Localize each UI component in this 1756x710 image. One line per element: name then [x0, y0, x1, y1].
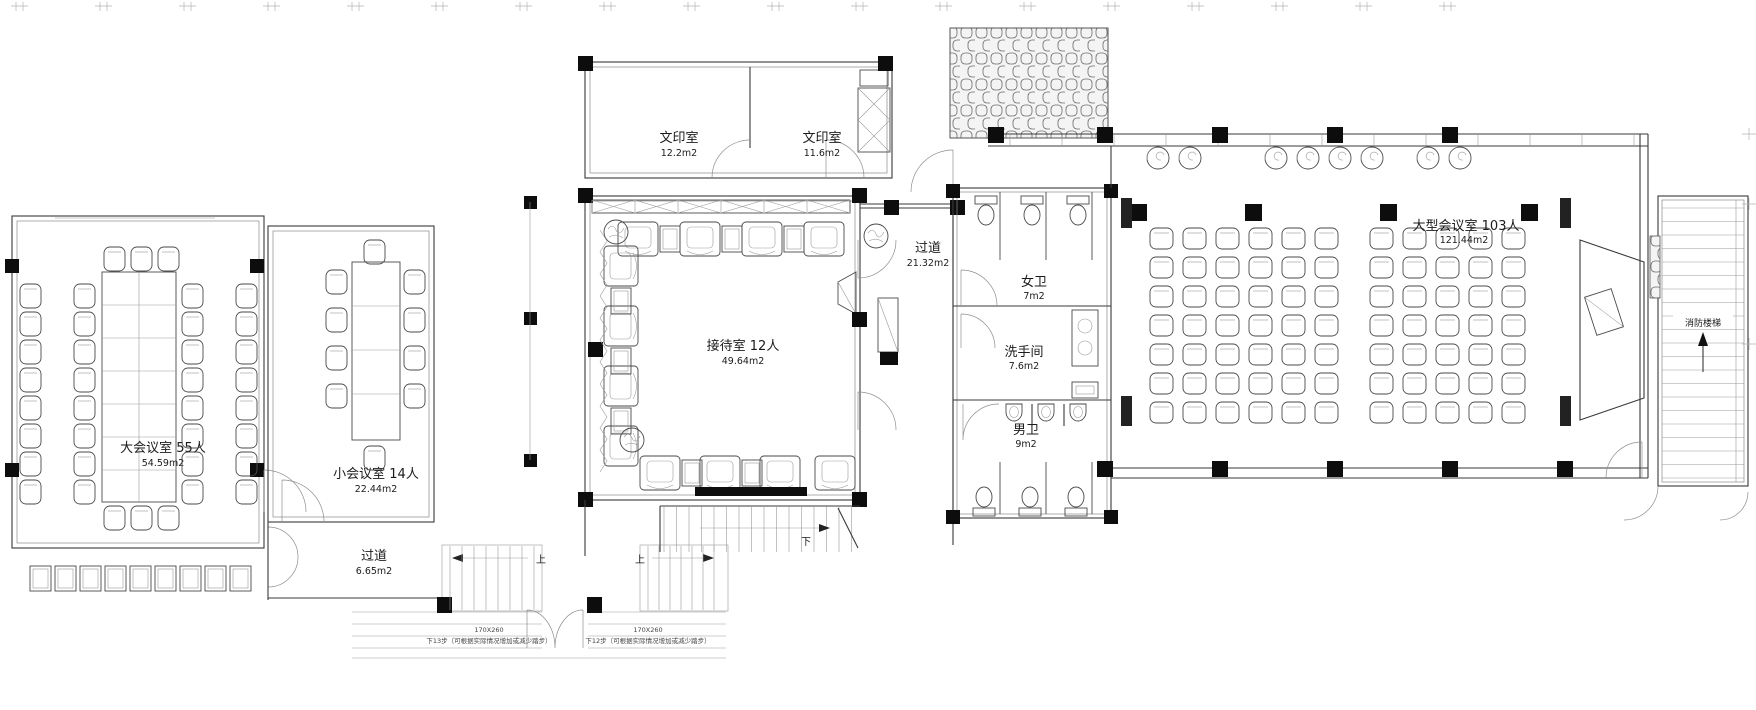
chair-icon [1469, 286, 1492, 307]
chair-icon [404, 384, 425, 408]
chair-icon [1403, 402, 1426, 423]
lounge-chair-icon [1361, 147, 1383, 169]
hatched-canopy [950, 28, 1108, 138]
armchair-icon [640, 456, 680, 490]
column-icon [5, 463, 19, 477]
door-arc [282, 480, 324, 522]
column-icon [5, 259, 19, 273]
waiting-chairs-row [30, 566, 251, 591]
arrow-head-icon [452, 554, 463, 562]
chair-icon [1282, 315, 1305, 336]
tick-mark [515, 2, 532, 11]
dimension-ticks-top [11, 2, 1456, 11]
chair-icon [20, 284, 41, 308]
vanity-counter [1072, 310, 1098, 366]
copier-cabinet [858, 88, 890, 152]
tick-mark [1103, 2, 1120, 11]
lounge-chair-icon [1329, 147, 1351, 169]
chair-icon [158, 247, 179, 271]
small-meeting-room-area: 22.44m2 [355, 484, 398, 495]
chair-icon [74, 452, 95, 476]
column-icon [946, 184, 960, 198]
column-icon [852, 492, 867, 507]
column-icon [1130, 204, 1147, 221]
square-chair-icon [80, 566, 101, 591]
lounge-chairs [1147, 147, 1471, 169]
chair-icon [1436, 344, 1459, 365]
speaker-cabinet [1560, 198, 1571, 228]
large-conference-hall: 大型会议室 103人 121.44m2 [988, 127, 1648, 478]
audience-chairs [1150, 228, 1525, 423]
cabinet-cross [858, 88, 890, 152]
tick-mark [1271, 2, 1288, 11]
chair-icon [74, 480, 95, 504]
door-arc [1720, 492, 1748, 520]
cabinet-cross [807, 200, 850, 213]
tread-dimension: 170X260 [474, 626, 503, 634]
chair-icon [20, 452, 41, 476]
print-room-1-area: 12.2m2 [661, 148, 697, 159]
lounge-chair-icon [1297, 147, 1319, 169]
door-arc [858, 392, 896, 430]
chair-icon [1370, 344, 1393, 365]
chair-icon [326, 308, 347, 332]
tick-mark [347, 2, 364, 11]
small-room-chairs [326, 240, 425, 470]
square-chair-icon [130, 566, 151, 591]
chair-icon [1469, 373, 1492, 394]
chair-icon [74, 396, 95, 420]
stair-note-12: 下12步（可根据实际情况增加或减少踏步） [585, 636, 710, 645]
side-table-icon [742, 460, 762, 486]
tick-mark [1439, 2, 1456, 11]
stall-partition [1000, 192, 1092, 260]
chair-icon [131, 247, 152, 271]
chair-icon [1150, 228, 1173, 249]
chair-icon [1403, 286, 1426, 307]
side-table-icon [722, 226, 742, 252]
corridor-left-label: 过道 [361, 549, 387, 564]
entry-stairs: 上 上 170X260 下13步（可根据实际情况增加或减少踏步） 170X260… [352, 545, 728, 658]
door-arc [712, 140, 750, 178]
chair-icon [158, 506, 179, 530]
chair-icon [1436, 286, 1459, 307]
side-table-icon [682, 460, 702, 486]
up-label: 上 [536, 554, 546, 566]
plant-icon [864, 224, 888, 248]
chair-icon [182, 284, 203, 308]
stair-note-13: 下13步（可根据实际情况增加或减少踏步） [426, 636, 551, 645]
chair-icon [20, 368, 41, 392]
column-icon [1097, 461, 1113, 477]
chair-icon [1216, 402, 1239, 423]
chair-icon [1183, 286, 1206, 307]
display-screen [838, 272, 856, 314]
tick-mark [1187, 2, 1204, 11]
small-meeting-room-label: 小会议室 14人 [333, 466, 419, 482]
shelf-inner [1076, 386, 1094, 394]
column-icon [588, 342, 603, 357]
chair-icon [1469, 315, 1492, 336]
column-icon [1521, 204, 1538, 221]
square-chair-icon [205, 566, 226, 591]
armchair-icon [604, 246, 638, 286]
floor-plan-sheet: 大会议室 55人 54.59m2 小会议室 14人 22.44m2 过道 6.6… [0, 0, 1756, 710]
cabinet-cross [635, 200, 678, 213]
side-table-icon [660, 226, 680, 252]
chair-icon [20, 480, 41, 504]
stair-rail [838, 508, 858, 548]
chair-icon [1183, 315, 1206, 336]
column-icon [1212, 461, 1228, 477]
arrow-head-icon [703, 554, 714, 562]
armchair-icon [804, 222, 844, 256]
armchair-icon [815, 456, 855, 490]
chair-icon [1469, 257, 1492, 278]
chair-icon [1282, 286, 1305, 307]
cabinet-cross [764, 200, 807, 213]
chair-icon [1282, 257, 1305, 278]
urinal-icon [1070, 404, 1086, 421]
column-icon [950, 200, 965, 215]
corridor-left: 过道 6.65m2 [268, 522, 442, 600]
cabinet-cross [592, 200, 635, 213]
chair-icon [1436, 402, 1459, 423]
door-arc [963, 404, 999, 440]
chair-icon [1216, 373, 1239, 394]
tick-mark [1355, 2, 1372, 11]
chair-icon [404, 346, 425, 370]
chair-icon [74, 368, 95, 392]
reception-room-label: 接待室 12人 [707, 338, 780, 354]
chair-icon [1216, 315, 1239, 336]
chair-icon [20, 424, 41, 448]
chair-icon [1249, 228, 1272, 249]
column-icon [878, 56, 893, 71]
chair-icon [1150, 315, 1173, 336]
chair-icon [1370, 257, 1393, 278]
chair-icon [1150, 286, 1173, 307]
print-rooms: 文印室 12.2m2 文印室 11.6m2 [585, 62, 892, 178]
armchair-icon [700, 456, 740, 490]
print-room-2-area: 11.6m2 [804, 148, 840, 159]
washroom-area: 7.6m2 [1009, 361, 1039, 372]
column-icon [946, 510, 960, 524]
tick-mark [599, 2, 616, 11]
corridor-mid-label: 过道 [915, 241, 941, 256]
armchair-icon [760, 456, 800, 490]
square-chair-icon [230, 566, 251, 591]
chair-icon [182, 340, 203, 364]
chair-icon [326, 384, 347, 408]
side-table-icon [611, 408, 631, 434]
chair-icon [1315, 373, 1338, 394]
womens-toilet-area: 7m2 [1023, 291, 1044, 302]
toilet-icon [1019, 487, 1041, 516]
chair-icon [1249, 257, 1272, 278]
chair-icon [20, 312, 41, 336]
porch-steps [352, 612, 726, 658]
washroom-label: 洗手间 [1004, 345, 1043, 360]
chair-icon [1150, 373, 1173, 394]
tick-mark [851, 2, 868, 11]
chair-icon [104, 247, 125, 271]
chair-icon [1282, 402, 1305, 423]
lounge-chair-icon [1449, 147, 1471, 169]
room-wall-inner [590, 67, 887, 173]
plant-icon [620, 428, 644, 452]
column-icon [1380, 204, 1397, 221]
column-icon [578, 56, 593, 71]
toilet-icon [1021, 196, 1043, 225]
lounge-chair-icon [1147, 147, 1169, 169]
room-wall [12, 216, 264, 548]
armchair-icon [604, 366, 638, 406]
toilet-icon [1065, 487, 1087, 516]
tick-mark [1742, 128, 1756, 140]
fire-stairs-label: 消防楼梯 [1685, 317, 1721, 329]
chair-icon [1183, 402, 1206, 423]
chair-icon [1403, 257, 1426, 278]
column-icon [578, 188, 593, 203]
chair-icon [1502, 373, 1525, 394]
chair-icon [1315, 286, 1338, 307]
chair-icon [236, 284, 257, 308]
lounge-chair-icon [1417, 147, 1439, 169]
chair-icon [1502, 286, 1525, 307]
chair-icon [182, 312, 203, 336]
chair-icon [131, 506, 152, 530]
chair-icon [236, 368, 257, 392]
tick-mark [431, 2, 448, 11]
lounge-chair-icon [1179, 147, 1201, 169]
chair-icon [1469, 402, 1492, 423]
chair-icon [326, 346, 347, 370]
tick-mark [1019, 2, 1036, 11]
chair-icon [236, 424, 257, 448]
mens-toilet-label: 男卫 [1013, 423, 1039, 438]
chair-icon [1403, 373, 1426, 394]
chair-icon [1183, 373, 1206, 394]
corridor-wall [268, 522, 442, 600]
column-icon [1097, 127, 1113, 143]
landing-beam [695, 487, 807, 496]
square-chair-icon [180, 566, 201, 591]
fire-stairs: 消防楼梯 [1624, 196, 1748, 520]
up-label: 上 [635, 554, 645, 566]
door-arc [1606, 442, 1642, 478]
chair-icon [1502, 315, 1525, 336]
column-icon [1104, 510, 1118, 524]
column-icon [1327, 461, 1343, 477]
print-room-2-label: 文印室 [802, 130, 841, 146]
reception-room-area: 49.64m2 [722, 356, 765, 367]
armchair-icon [604, 306, 638, 346]
large-meeting-room: 大会议室 55人 54.59m2 [5, 216, 306, 587]
speaker-cabinet [1121, 198, 1132, 228]
column-icon [587, 597, 602, 613]
chair-icon [1183, 344, 1206, 365]
chair-icon [182, 368, 203, 392]
chair-icon [20, 340, 41, 364]
column-icon [1557, 461, 1573, 477]
stair-flight-right [640, 545, 728, 611]
chair-icon [1315, 315, 1338, 336]
chair-icon [74, 424, 95, 448]
chair-icon [1249, 286, 1272, 307]
chair-icon [1315, 344, 1338, 365]
column-icon [880, 352, 898, 365]
square-chair-icon [55, 566, 76, 591]
chair-icon [1315, 257, 1338, 278]
wall-pier [1650, 236, 1660, 298]
chair-icon [1216, 228, 1239, 249]
chair-icon [1216, 286, 1239, 307]
chair-icon [236, 480, 257, 504]
chair-icon [364, 240, 385, 264]
chair-icon [1249, 373, 1272, 394]
armchair-icon [604, 426, 638, 466]
chair-icon [1216, 257, 1239, 278]
column-icon [1245, 204, 1262, 221]
table-panels [352, 306, 400, 394]
large-meeting-room-area: 54.59m2 [142, 458, 185, 469]
chair-icon [74, 284, 95, 308]
large-conference-area: 121.44m2 [1440, 235, 1489, 246]
meeting-table [352, 262, 400, 440]
chair-icon [1282, 373, 1305, 394]
door-arc [858, 240, 896, 278]
chair-icon [1315, 228, 1338, 249]
chair-icon [236, 340, 257, 364]
column-icon [1442, 127, 1458, 143]
hall-walls [1111, 134, 1648, 478]
chair-icon [104, 506, 125, 530]
urinal-icon [1038, 404, 1054, 421]
side-table-icon [611, 288, 631, 314]
chair-icon [1436, 315, 1459, 336]
chair-icon [1315, 402, 1338, 423]
chair-icon [236, 312, 257, 336]
floor-plan-canvas: 大会议室 55人 54.59m2 小会议室 14人 22.44m2 过道 6.6… [0, 0, 1756, 710]
door-arc [264, 470, 306, 512]
square-chair-icon [30, 566, 51, 591]
room-wall [585, 62, 892, 178]
chair-icon [1370, 228, 1393, 249]
chair-icon [404, 308, 425, 332]
toilet-block: 女卫 7m2 洗手间 7.6m2 男卫 9m2 [946, 184, 1118, 524]
urinal-icon [1006, 404, 1022, 421]
column-icon [852, 188, 867, 203]
chair-icon [182, 480, 203, 504]
plant-icon [604, 220, 628, 244]
chair-icon [1282, 228, 1305, 249]
chair-icon [1370, 315, 1393, 336]
stair-flight-left [442, 545, 542, 611]
chair-icon [404, 270, 425, 294]
speaker-cabinet [1121, 396, 1132, 426]
mens-toilet-area: 9m2 [1015, 439, 1036, 450]
chair-icon [74, 340, 95, 364]
chair-icon [1150, 257, 1173, 278]
tick-mark [179, 2, 196, 11]
square-chair-icon [155, 566, 176, 591]
womens-toilet-label: 女卫 [1021, 274, 1047, 290]
door-arc [961, 314, 995, 348]
column-icon [250, 259, 264, 273]
chair-icon [74, 312, 95, 336]
chair-icon [1249, 344, 1272, 365]
column-icon [524, 196, 537, 209]
sink-icon [1078, 319, 1092, 333]
side-table-icon [611, 348, 631, 374]
corridor-mid-area: 21.32m2 [907, 258, 950, 269]
column-icon [1442, 461, 1458, 477]
lounge-chair-icon [1265, 147, 1287, 169]
chair-icon [1403, 344, 1426, 365]
chair-icon [1183, 257, 1206, 278]
entry-stair-treads [450, 546, 714, 610]
column-icon [1212, 127, 1228, 143]
chair-icon [20, 396, 41, 420]
cabinet-diagonal [878, 298, 898, 352]
tick-mark [767, 2, 784, 11]
chair-icon [1183, 228, 1206, 249]
chair-icon [1216, 344, 1239, 365]
cabinet-band-crosses [592, 200, 850, 213]
toilet-icon [975, 196, 997, 225]
column-icon [524, 312, 537, 325]
tick-mark [263, 2, 280, 11]
column-icon [524, 454, 537, 467]
chair-icon [1370, 286, 1393, 307]
chair-icon [1150, 402, 1173, 423]
chair-icon [1436, 373, 1459, 394]
cabinet-top [860, 70, 888, 86]
chair-icon [1150, 344, 1173, 365]
column-icon [852, 312, 867, 327]
chair-icon [1502, 257, 1525, 278]
door-arc [961, 270, 997, 306]
print-room-1-label: 文印室 [659, 130, 698, 146]
side-table-icon [784, 226, 804, 252]
room-wall-inner [17, 221, 259, 543]
podium [1585, 289, 1624, 336]
chair-icon [1469, 344, 1492, 365]
column-icon [1327, 127, 1343, 143]
chair-icon [1370, 402, 1393, 423]
left-room-chairs [20, 247, 257, 530]
cabinet-cross [721, 200, 764, 213]
chair-icon [236, 396, 257, 420]
armchair-icon [680, 222, 720, 256]
chair-icon [1502, 344, 1525, 365]
cabinet-cross [678, 200, 721, 213]
toilet-icon [1067, 196, 1089, 225]
chair-icon [1249, 315, 1272, 336]
arrow-head-icon [1698, 332, 1708, 346]
arrow-head-icon [819, 524, 830, 532]
chair-icon [1403, 315, 1426, 336]
chair-icon [182, 396, 203, 420]
large-conference-label: 大型会议室 103人 [1413, 218, 1520, 234]
tick-mark [683, 2, 700, 11]
corridor-left-area: 6.65m2 [356, 566, 392, 577]
tick-mark [95, 2, 112, 11]
column-icon [988, 127, 1004, 143]
square-chair-icon [105, 566, 126, 591]
column-icon [884, 200, 899, 215]
